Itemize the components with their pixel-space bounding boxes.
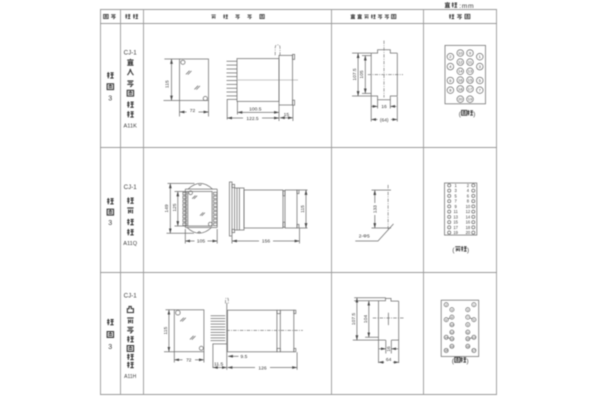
- svg-text::mm: :mm: [459, 3, 474, 10]
- svg-text:15: 15: [284, 112, 290, 118]
- svg-text:A11K: A11K: [124, 123, 138, 129]
- svg-text:CJ-1: CJ-1: [124, 293, 138, 300]
- svg-text:13: 13: [472, 335, 476, 339]
- svg-text:20: 20: [458, 97, 463, 102]
- svg-text:15: 15: [468, 77, 473, 82]
- svg-text:105: 105: [197, 239, 205, 245]
- svg-text:12: 12: [466, 209, 471, 214]
- svg-text:17: 17: [468, 86, 473, 91]
- svg-text:100.5: 100.5: [249, 106, 262, 112]
- svg-text:10: 10: [450, 323, 454, 327]
- svg-text:): ): [467, 358, 469, 365]
- svg-text:107.5: 107.5: [351, 313, 357, 326]
- svg-text:14: 14: [458, 69, 463, 74]
- svg-text:CJ-1: CJ-1: [124, 184, 138, 191]
- svg-text:11: 11: [453, 209, 458, 214]
- svg-text:15: 15: [466, 337, 470, 341]
- svg-text:12: 12: [458, 59, 463, 64]
- svg-text:19: 19: [453, 230, 458, 235]
- svg-text:3: 3: [108, 95, 112, 102]
- svg-text:17: 17: [472, 349, 476, 353]
- svg-text:13: 13: [468, 69, 473, 74]
- svg-text:16: 16: [386, 346, 392, 352]
- svg-text:): ): [467, 247, 469, 254]
- svg-text:3: 3: [108, 220, 112, 227]
- svg-text:19: 19: [468, 97, 473, 102]
- svg-text:133: 133: [373, 205, 379, 213]
- svg-text:115: 115: [164, 80, 170, 88]
- svg-text:125: 125: [172, 203, 178, 211]
- svg-text:72: 72: [186, 358, 192, 364]
- svg-text:16: 16: [458, 77, 463, 82]
- svg-text:2-Φ5: 2-Φ5: [359, 234, 370, 240]
- svg-text:16: 16: [450, 337, 454, 341]
- svg-text:20: 20: [450, 344, 454, 348]
- svg-text:126: 126: [258, 365, 266, 371]
- svg-text:3: 3: [108, 344, 112, 351]
- svg-text:149: 149: [164, 204, 170, 212]
- svg-text:105: 105: [359, 70, 365, 78]
- svg-text:9.5: 9.5: [241, 354, 248, 360]
- svg-text:64: 64: [386, 357, 392, 363]
- svg-text:10: 10: [458, 50, 463, 55]
- svg-text:115: 115: [163, 327, 169, 335]
- svg-text:18: 18: [458, 86, 463, 91]
- svg-text:12: 12: [450, 330, 454, 334]
- svg-text:A11H: A11H: [124, 374, 137, 380]
- svg-text:11: 11: [466, 330, 469, 334]
- svg-text:CJ-1: CJ-1: [124, 50, 138, 57]
- svg-text:107.5: 107.5: [352, 68, 358, 81]
- svg-text:15: 15: [453, 220, 458, 225]
- svg-text:16: 16: [381, 104, 387, 110]
- svg-text:17: 17: [453, 225, 458, 230]
- svg-text:11.5: 11.5: [214, 361, 223, 367]
- svg-text:A11Q: A11Q: [123, 241, 138, 247]
- svg-text:72: 72: [190, 108, 196, 114]
- svg-text:14: 14: [445, 335, 449, 339]
- svg-text:104: 104: [363, 315, 369, 323]
- svg-text:18: 18: [445, 349, 449, 353]
- svg-text:(64): (64): [380, 117, 389, 123]
- svg-text:18: 18: [466, 225, 471, 230]
- svg-text:20: 20: [466, 230, 471, 235]
- svg-text:115: 115: [300, 205, 306, 213]
- svg-text:156: 156: [262, 239, 270, 245]
- svg-text:): ): [473, 111, 475, 118]
- svg-text:19: 19: [466, 344, 470, 348]
- svg-text:16: 16: [466, 220, 471, 225]
- svg-text:122.5: 122.5: [246, 116, 259, 122]
